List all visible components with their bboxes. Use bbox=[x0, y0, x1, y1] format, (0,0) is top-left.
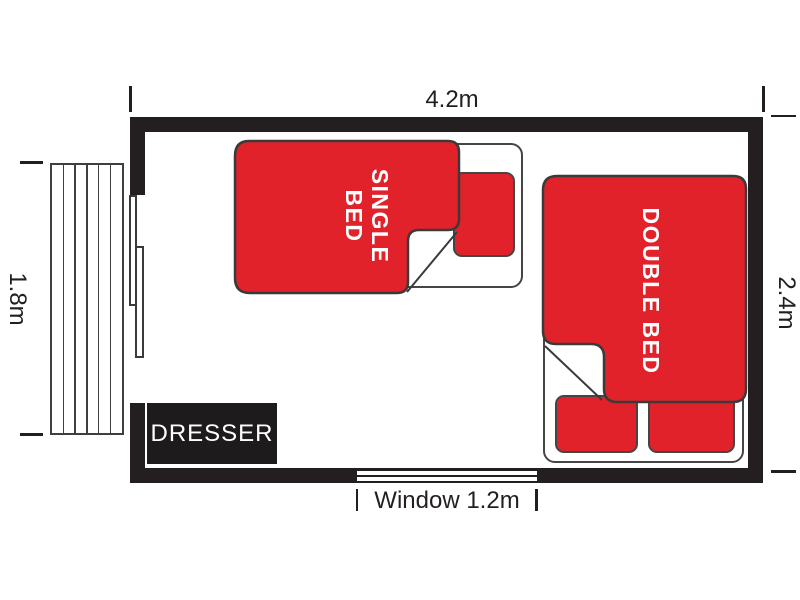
deck-board-line bbox=[63, 165, 65, 433]
single-bed-pillow bbox=[453, 172, 515, 257]
window-frame-line bbox=[357, 468, 537, 471]
dim-tick-window-right bbox=[535, 489, 538, 511]
dim-tick-left-bottom bbox=[20, 433, 43, 436]
window-frame-line bbox=[357, 481, 537, 484]
dimension-label-right: 2.4m bbox=[772, 276, 800, 329]
dim-tick-top-left bbox=[129, 86, 132, 112]
dim-tick-right-bottom bbox=[771, 470, 796, 473]
dim-tick-window-left bbox=[356, 489, 359, 511]
dim-tick-left-top bbox=[20, 161, 43, 164]
double-bed-pillow-right bbox=[648, 395, 735, 453]
dimension-label-top: 4.2m bbox=[425, 86, 478, 114]
dimension-label-window: Window 1.2m bbox=[374, 487, 519, 515]
dresser: DRESSER bbox=[147, 403, 277, 464]
dim-tick-right-top bbox=[771, 115, 796, 118]
dimension-label-left: 1.8m bbox=[3, 272, 31, 325]
deck-board-line bbox=[86, 165, 88, 433]
deck-board-line bbox=[74, 165, 76, 433]
dresser-label: DRESSER bbox=[150, 420, 273, 448]
sliding-door-panel-inner bbox=[135, 246, 144, 358]
window-glass-line bbox=[357, 475, 537, 477]
single-bed-label: SINGLE BED bbox=[340, 169, 392, 264]
deck-board-line bbox=[110, 165, 112, 433]
window bbox=[357, 466, 537, 485]
double-bed-pillow-left bbox=[555, 395, 638, 453]
bedroom-floor-plan: DRESSER SINGLE BED DOUBLE BED 4.2m 1.8m … bbox=[0, 0, 800, 600]
dim-tick-top-right bbox=[762, 86, 765, 112]
deck-board-line bbox=[98, 165, 100, 433]
deck bbox=[50, 163, 124, 435]
double-bed-label: DOUBLE BED bbox=[637, 207, 663, 374]
